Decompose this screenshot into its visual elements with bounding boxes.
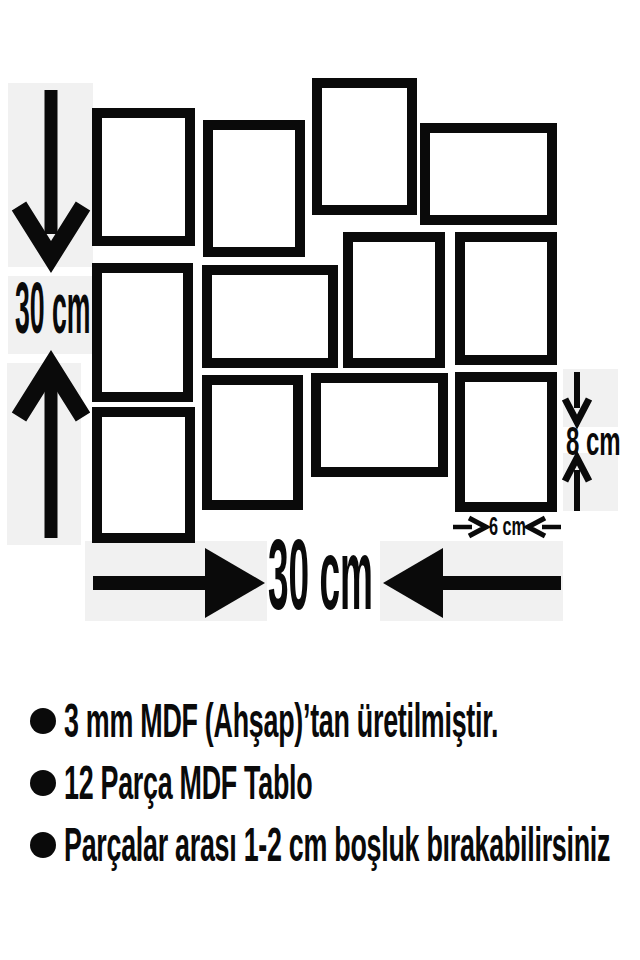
mdf-piece — [311, 373, 448, 477]
product-notes: 3 mm MDF (Ahşap)’tan üretilmiştir. 12 Pa… — [30, 695, 640, 881]
piece-height-dimension-label: 8 cm — [566, 421, 621, 461]
mdf-piece — [92, 407, 195, 543]
piece-width-dimension-label: 6 cm — [489, 514, 526, 539]
product-dimension-diagram: 30 cm 30 cm 8 cm 6 cm 3 mm MDF (Ahşap)’t… — [0, 0, 640, 960]
mdf-piece — [202, 265, 338, 368]
bullet-icon — [30, 708, 56, 734]
note-row: 12 Parça MDF Tablo — [30, 757, 640, 809]
height-dimension-label: 30 cm — [15, 272, 91, 344]
mdf-piece — [420, 123, 557, 225]
bullet-icon — [30, 832, 56, 858]
note-row: 3 mm MDF (Ahşap)’tan üretilmiştir. — [30, 695, 640, 747]
bullet-icon — [30, 770, 56, 796]
mdf-piece — [455, 232, 557, 365]
mdf-piece — [202, 375, 303, 510]
mdf-piece — [312, 78, 417, 215]
mdf-piece — [203, 120, 305, 257]
note-text: Parçalar arası 1-2 cm boşluk bırakabilir… — [64, 819, 610, 871]
note-row: Parçalar arası 1-2 cm boşluk bırakabilir… — [30, 819, 640, 871]
mdf-piece — [343, 232, 445, 368]
width-dimension-label: 30 cm — [268, 524, 373, 624]
mdf-piece — [92, 263, 193, 402]
note-text: 3 mm MDF (Ahşap)’tan üretilmiştir. — [64, 695, 498, 747]
mdf-piece — [92, 108, 195, 246]
note-text: 12 Parça MDF Tablo — [64, 757, 312, 809]
mdf-piece — [455, 372, 557, 512]
